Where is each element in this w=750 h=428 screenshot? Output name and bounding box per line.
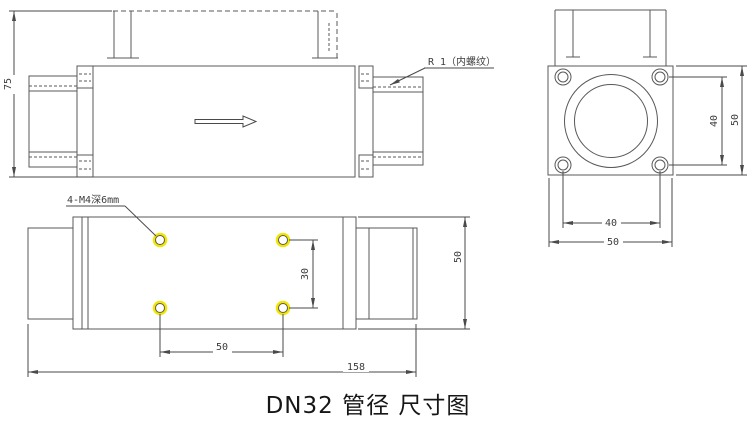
side-view-right-flange	[359, 66, 373, 177]
top-view: 4-M4深6mm 30 50 158	[28, 194, 470, 377]
side-view-top-connector	[107, 11, 338, 58]
thread-callout: R 1（内螺纹）	[390, 55, 496, 85]
dimension-drawing-canvas: 75 R 1（内螺纹）	[0, 0, 750, 428]
technical-drawing-page: 75 R 1（内螺纹）	[0, 0, 750, 428]
end-hole-pitch-h-label: 40	[605, 218, 617, 229]
drawing-title: DN32 管径 尺寸图	[0, 386, 736, 420]
side-view-right-pipe	[373, 77, 423, 165]
tapped-holes	[154, 234, 289, 314]
top-view-right-cap	[356, 228, 417, 319]
thread-callout-label: R 1（内螺纹）	[428, 55, 496, 68]
end-view-bore-outer	[565, 75, 658, 168]
top-length-label: 158	[347, 362, 365, 373]
side-view: 75 R 1（内螺纹）	[3, 11, 496, 177]
end-view-top-stub	[555, 10, 666, 66]
end-view: 40 50 40 50	[548, 10, 747, 248]
end-height-label: 50	[730, 114, 741, 126]
top-view-hole-pitch-w-dimension: 30	[289, 240, 318, 308]
side-view-left-flange	[77, 66, 93, 177]
tapped-hole	[156, 236, 165, 245]
tapped-hole-callout-label: 4-M4深6mm	[67, 194, 119, 206]
side-view-left-pipe	[29, 76, 77, 167]
flow-arrow-icon	[195, 116, 256, 127]
tapped-hole	[279, 236, 288, 245]
tapped-hole	[279, 304, 288, 313]
tapped-hole-callout: 4-M4深6mm	[66, 194, 156, 236]
end-view-width-dimension: 50	[549, 178, 672, 248]
end-width-label: 50	[607, 237, 619, 248]
end-hole-pitch-v-label: 40	[709, 115, 720, 127]
top-view-left-flange	[73, 217, 88, 329]
side-height-dim-label: 75	[3, 78, 14, 90]
top-view-hole-pitch-l-dimension: 50	[160, 314, 283, 357]
top-view-right-flange	[343, 217, 356, 329]
top-view-width-dimension: 50	[358, 217, 470, 329]
top-hole-pitch-l-label: 50	[216, 342, 228, 353]
top-width-label: 50	[453, 251, 464, 263]
top-hole-pitch-w-label: 30	[300, 268, 311, 280]
end-view-hole-pitch-h-dimension: 40	[563, 171, 660, 229]
top-view-left-cap	[28, 228, 73, 319]
end-view-bore-inner	[575, 85, 648, 158]
tapped-hole	[156, 304, 165, 313]
end-view-hole-pitch-v-dimension: 40	[669, 77, 727, 165]
